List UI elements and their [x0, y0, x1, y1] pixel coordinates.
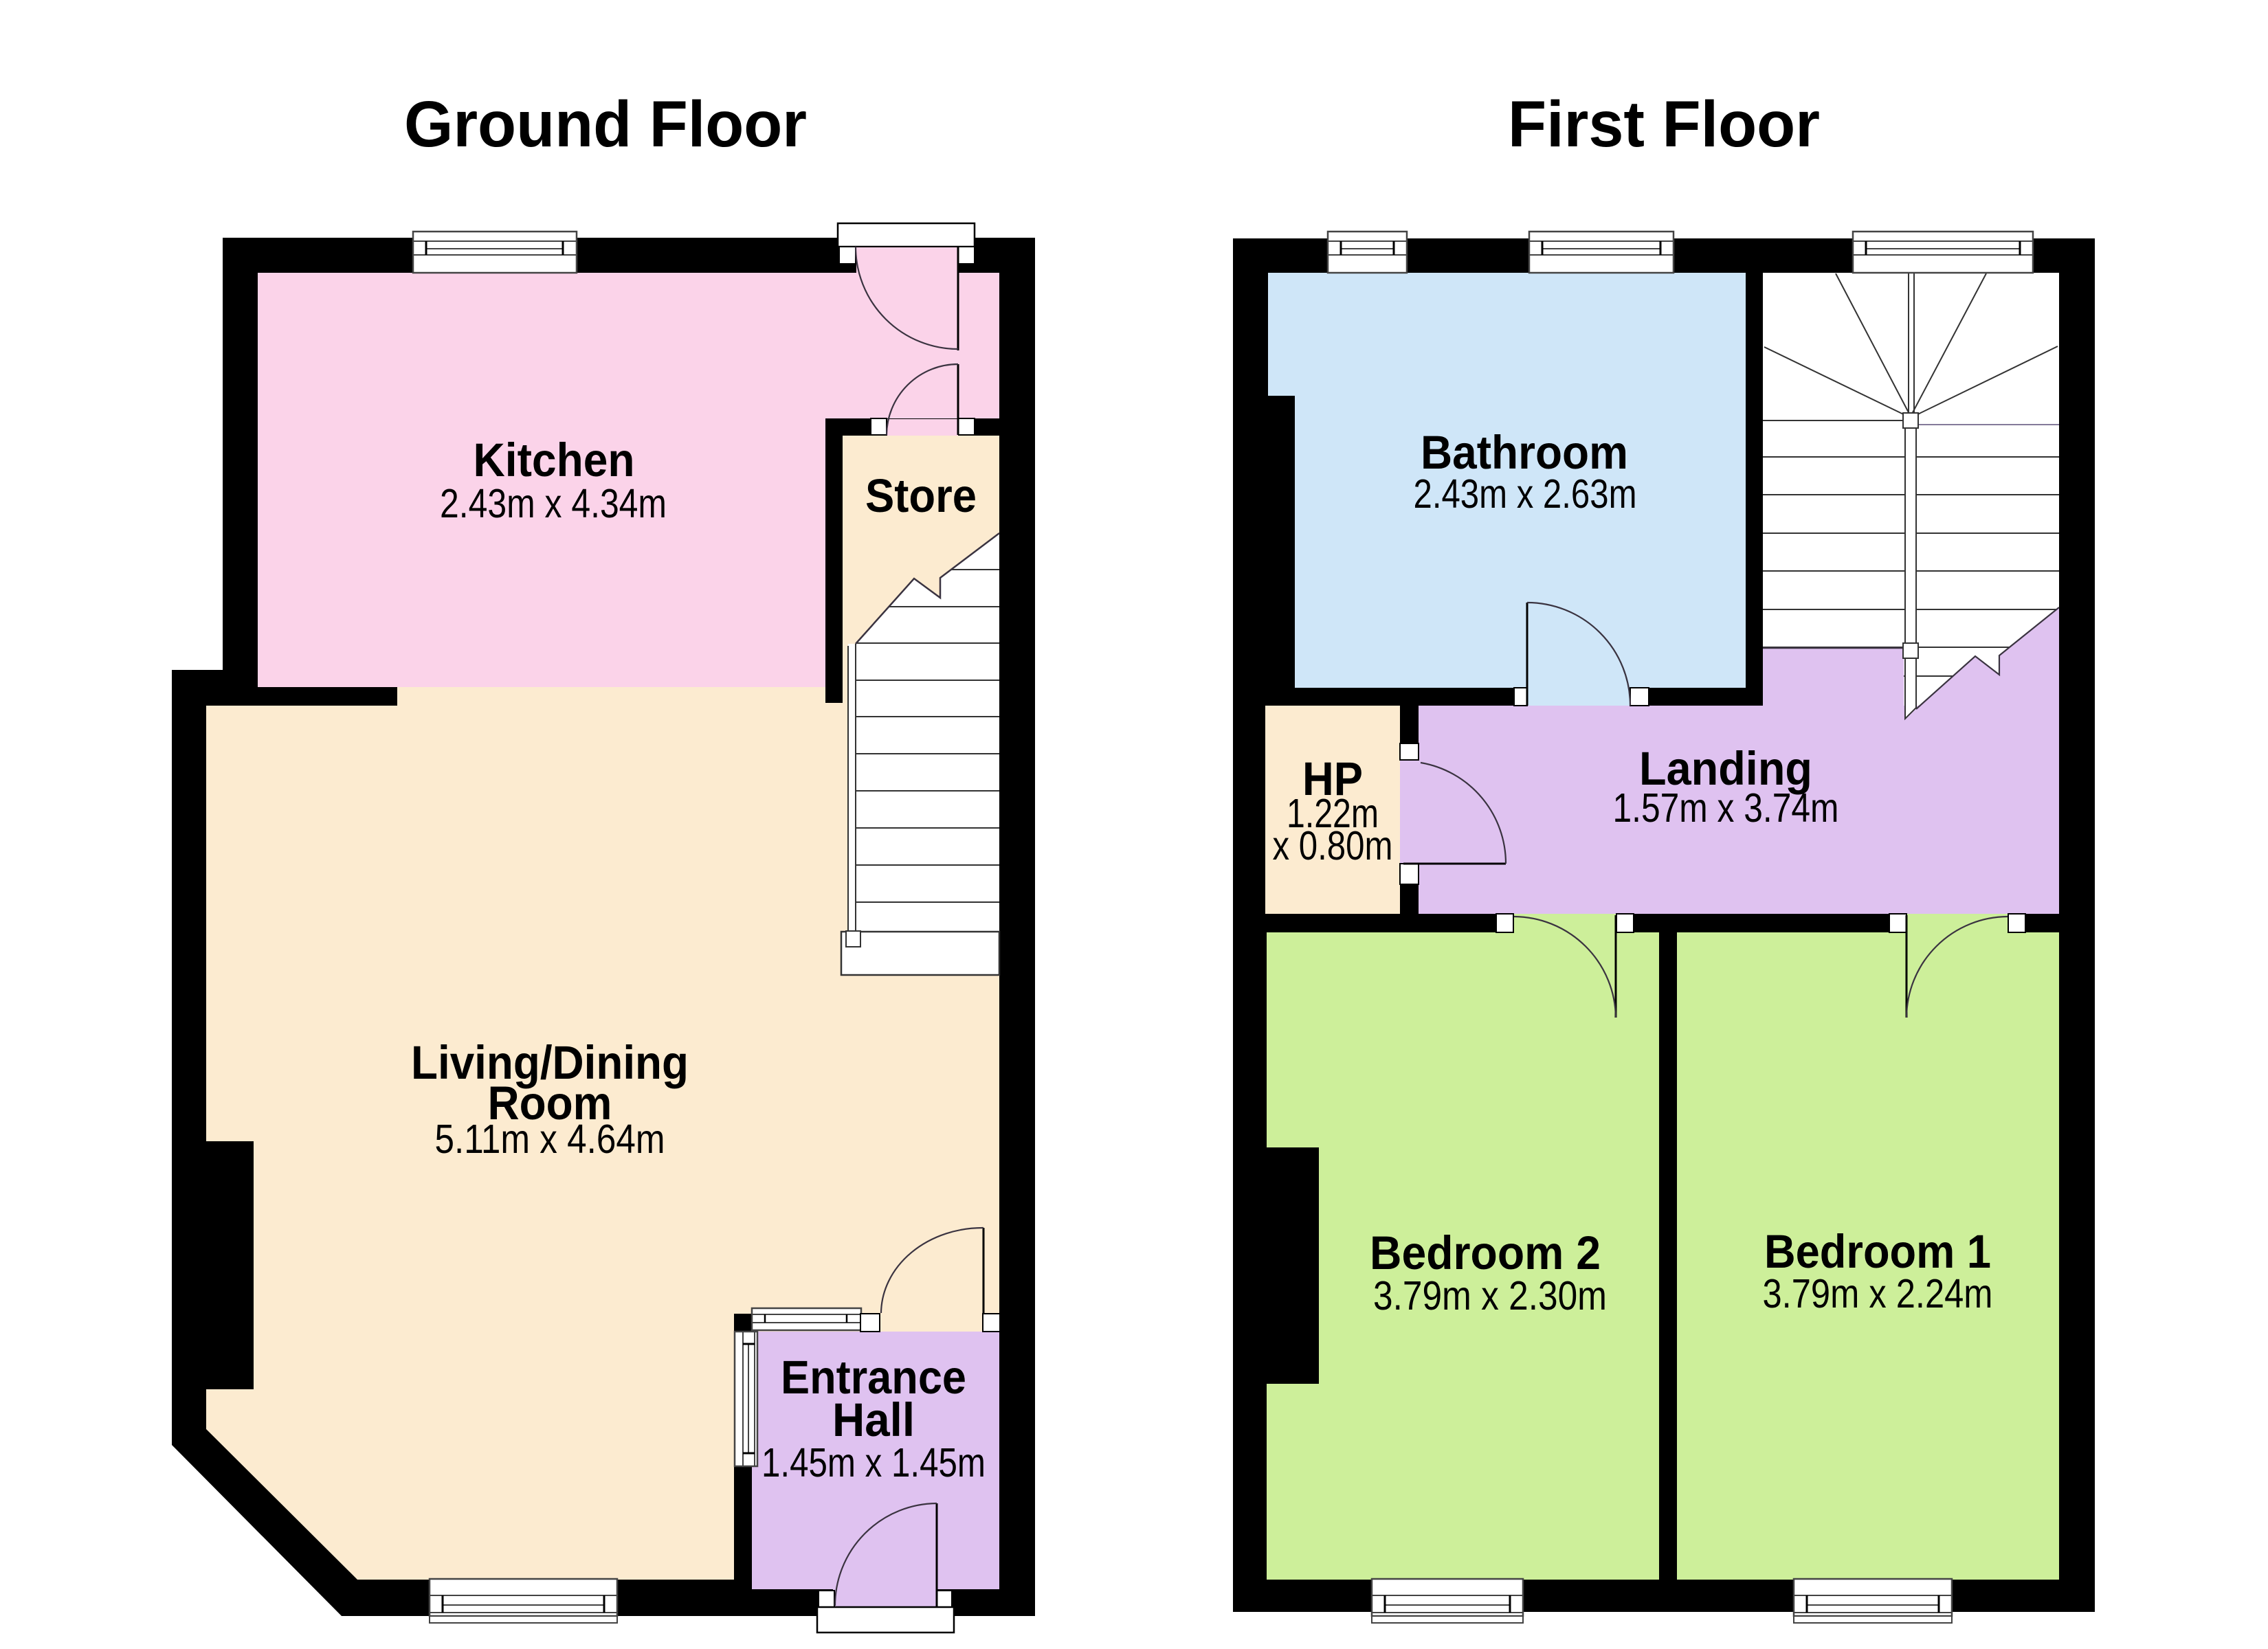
- svg-text:Hall: Hall: [832, 1393, 915, 1446]
- svg-text:3.79m x 2.24m: 3.79m x 2.24m: [1763, 1271, 1993, 1316]
- svg-text:1.57m x 3.74m: 1.57m x 3.74m: [1613, 785, 1839, 831]
- svg-text:Ground Floor: Ground Floor: [404, 88, 807, 161]
- svg-text:x 0.80m: x 0.80m: [1273, 823, 1393, 868]
- svg-text:Kitchen: Kitchen: [474, 434, 635, 486]
- svg-text:Store: Store: [865, 469, 977, 522]
- svg-text:3.79m x 2.30m: 3.79m x 2.30m: [1373, 1273, 1607, 1319]
- svg-text:2.43m x 4.34m: 2.43m x 4.34m: [440, 481, 667, 526]
- svg-text:Bedroom 1: Bedroom 1: [1764, 1225, 1991, 1278]
- svg-text:First Floor: First Floor: [1508, 88, 1820, 161]
- svg-text:Bedroom 2: Bedroom 2: [1370, 1226, 1601, 1279]
- svg-text:2.43m x 2.63m: 2.43m x 2.63m: [1414, 471, 1637, 517]
- svg-text:1.45m x 1.45m: 1.45m x 1.45m: [761, 1440, 986, 1485]
- svg-text:5.11m x 4.64m: 5.11m x 4.64m: [435, 1117, 665, 1162]
